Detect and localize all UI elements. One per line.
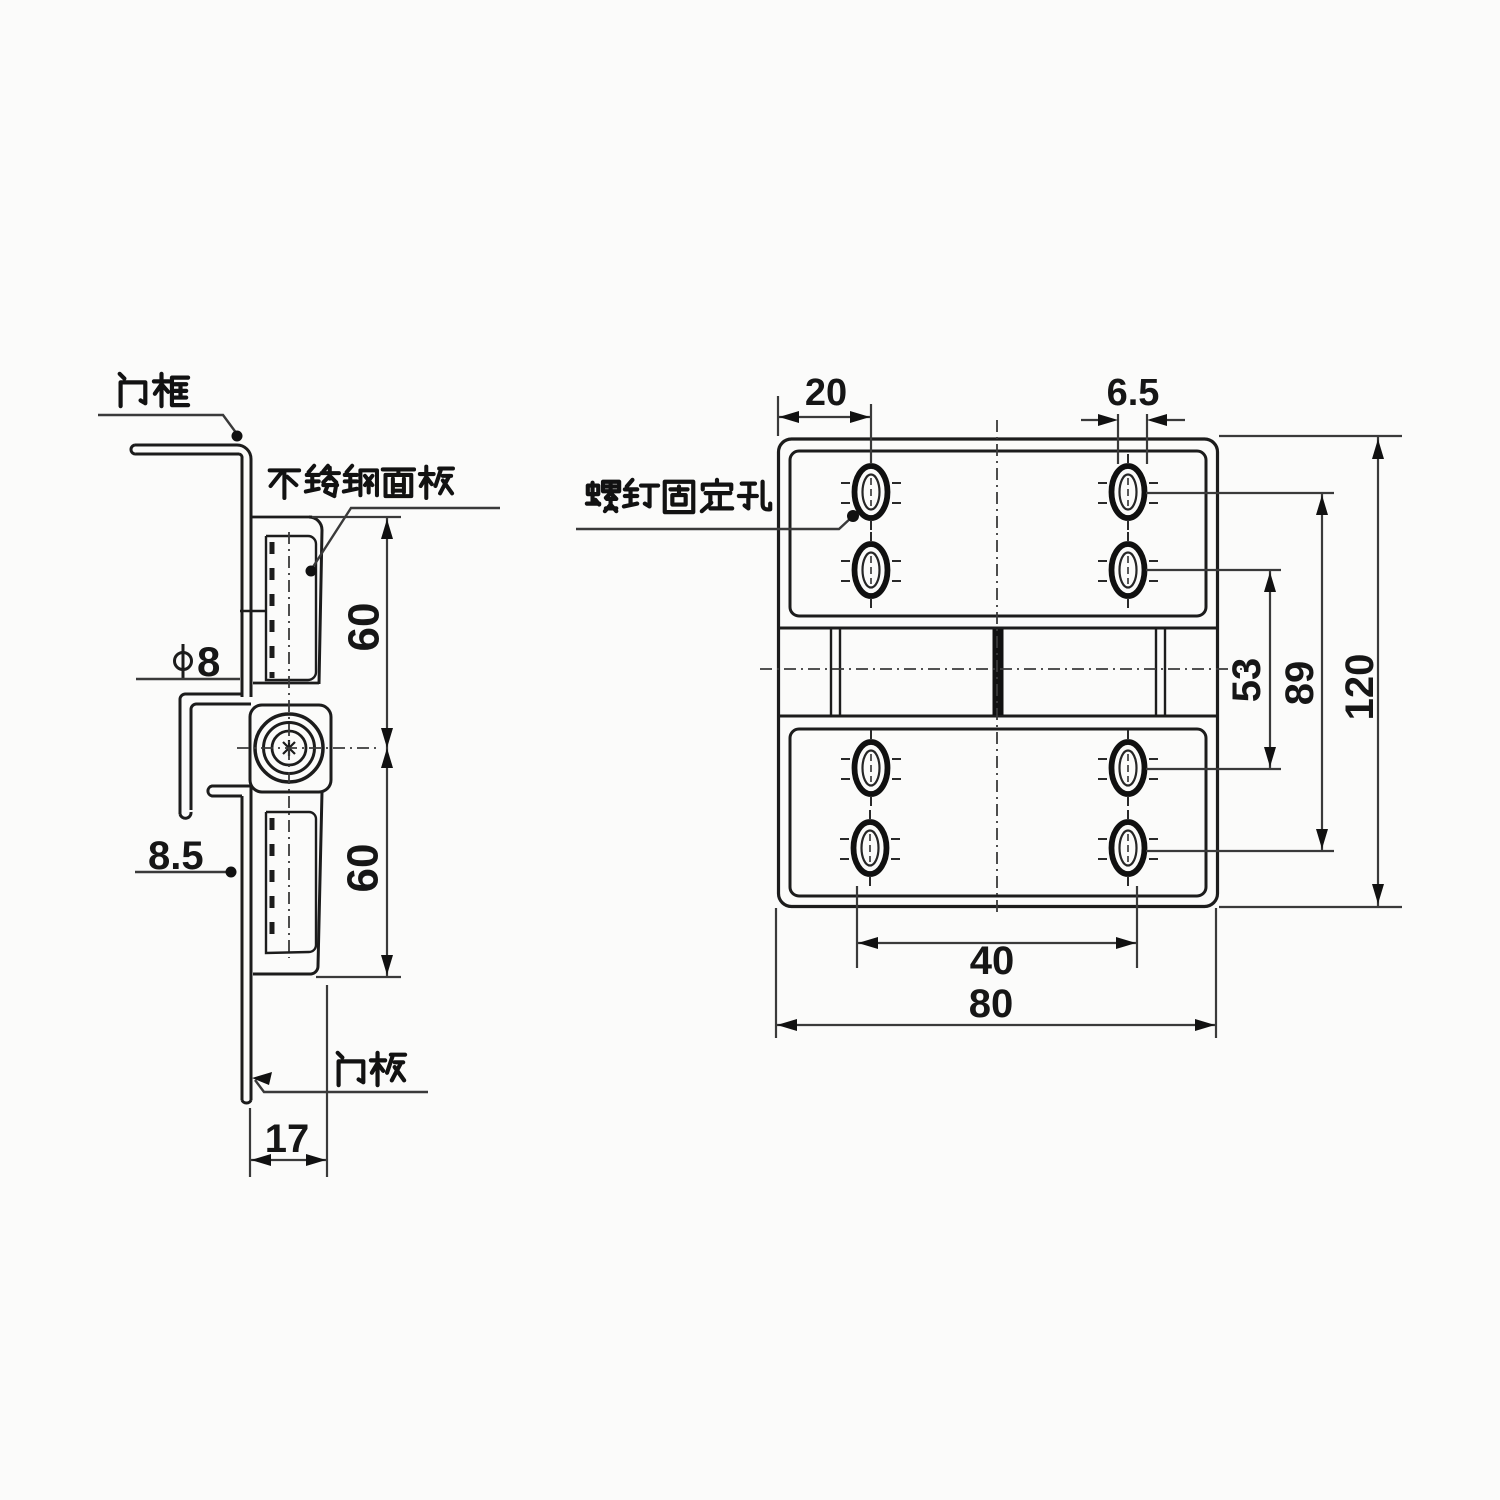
svg-text:17: 17 xyxy=(265,1117,310,1161)
svg-text:60: 60 xyxy=(340,603,389,652)
svg-text:53: 53 xyxy=(1225,658,1269,703)
svg-text:80: 80 xyxy=(969,982,1014,1026)
svg-text:120: 120 xyxy=(1338,654,1382,721)
svg-text:20: 20 xyxy=(805,372,847,414)
svg-text:40: 40 xyxy=(970,939,1015,983)
svg-text:6.5: 6.5 xyxy=(1107,372,1160,414)
svg-text:60: 60 xyxy=(339,844,388,893)
svg-text:89: 89 xyxy=(1278,661,1322,706)
